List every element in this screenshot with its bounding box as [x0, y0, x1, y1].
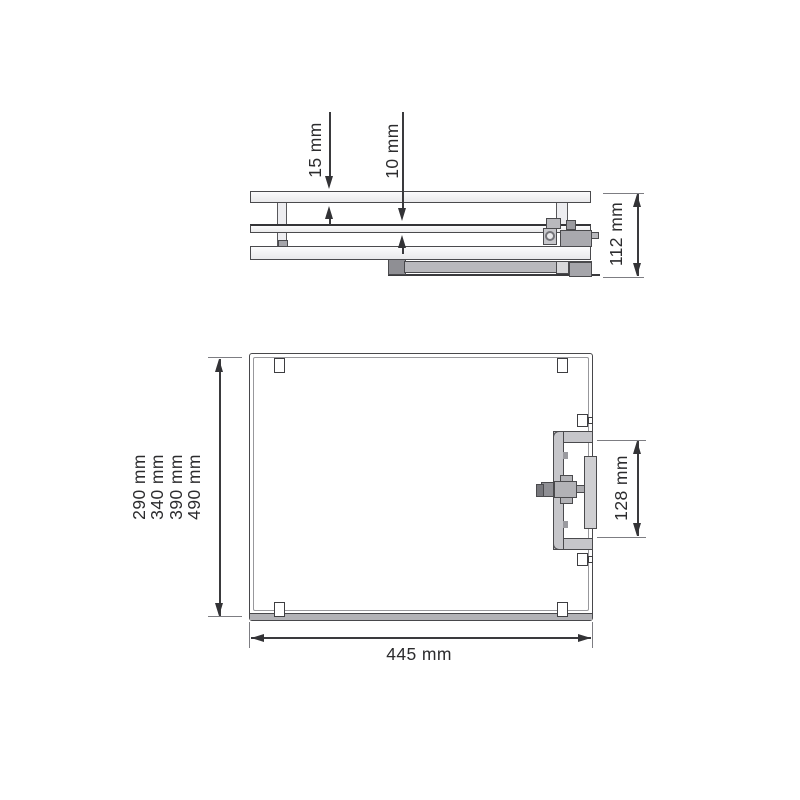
dim-width-arrow-right	[578, 634, 591, 642]
dim-128-arrow-down	[633, 523, 641, 536]
dim-depth-arrow-up	[215, 359, 223, 372]
corner-clip-top-right	[557, 358, 568, 373]
dim-width-arrow-left	[251, 634, 264, 642]
dim-label-445mm: 445 mm	[369, 644, 469, 664]
dim-label-290mm: 290 mm	[129, 437, 149, 537]
dim-depth-extension-top	[208, 357, 242, 358]
hub-pin-tip	[536, 484, 544, 497]
hub-shaft	[576, 485, 585, 493]
edge-clip-upper	[577, 414, 588, 427]
plan-view: 290 mm 340 mm 390 mm 490 mm 445 mm 128 m…	[0, 0, 800, 800]
bracket-inner-stud-upper	[563, 452, 568, 459]
dim-label-390mm: 390 mm	[166, 437, 186, 537]
dim-width-line	[251, 637, 591, 639]
corner-clip-top-left	[274, 358, 285, 373]
dim-depth-line	[219, 359, 221, 616]
dim-128-arrow-up	[633, 441, 641, 454]
dim-128-line	[637, 441, 639, 536]
corner-clip-bottom-right	[557, 602, 568, 617]
dim-label-128mm: 128 mm	[611, 438, 631, 538]
edge-clip-lower	[577, 553, 588, 566]
dim-width-extension-right	[592, 622, 593, 648]
corner-clip-bottom-left	[274, 602, 285, 617]
dim-depth-arrow-down	[215, 603, 223, 616]
dim-depth-extension-bottom	[208, 616, 242, 617]
edge-clip-upper-tab	[588, 417, 593, 424]
dim-label-490mm: 490 mm	[184, 437, 204, 537]
dim-label-340mm: 340 mm	[147, 437, 167, 537]
bracket-inner-stud-lower	[563, 521, 568, 528]
hub-block-horizontal	[554, 481, 577, 498]
edge-clip-lower-tab	[588, 556, 593, 563]
mount-plate	[584, 456, 597, 529]
tray-front-rail	[250, 613, 592, 620]
technical-drawing-canvas: 15 mm 10 mm 112 mm	[0, 0, 800, 800]
